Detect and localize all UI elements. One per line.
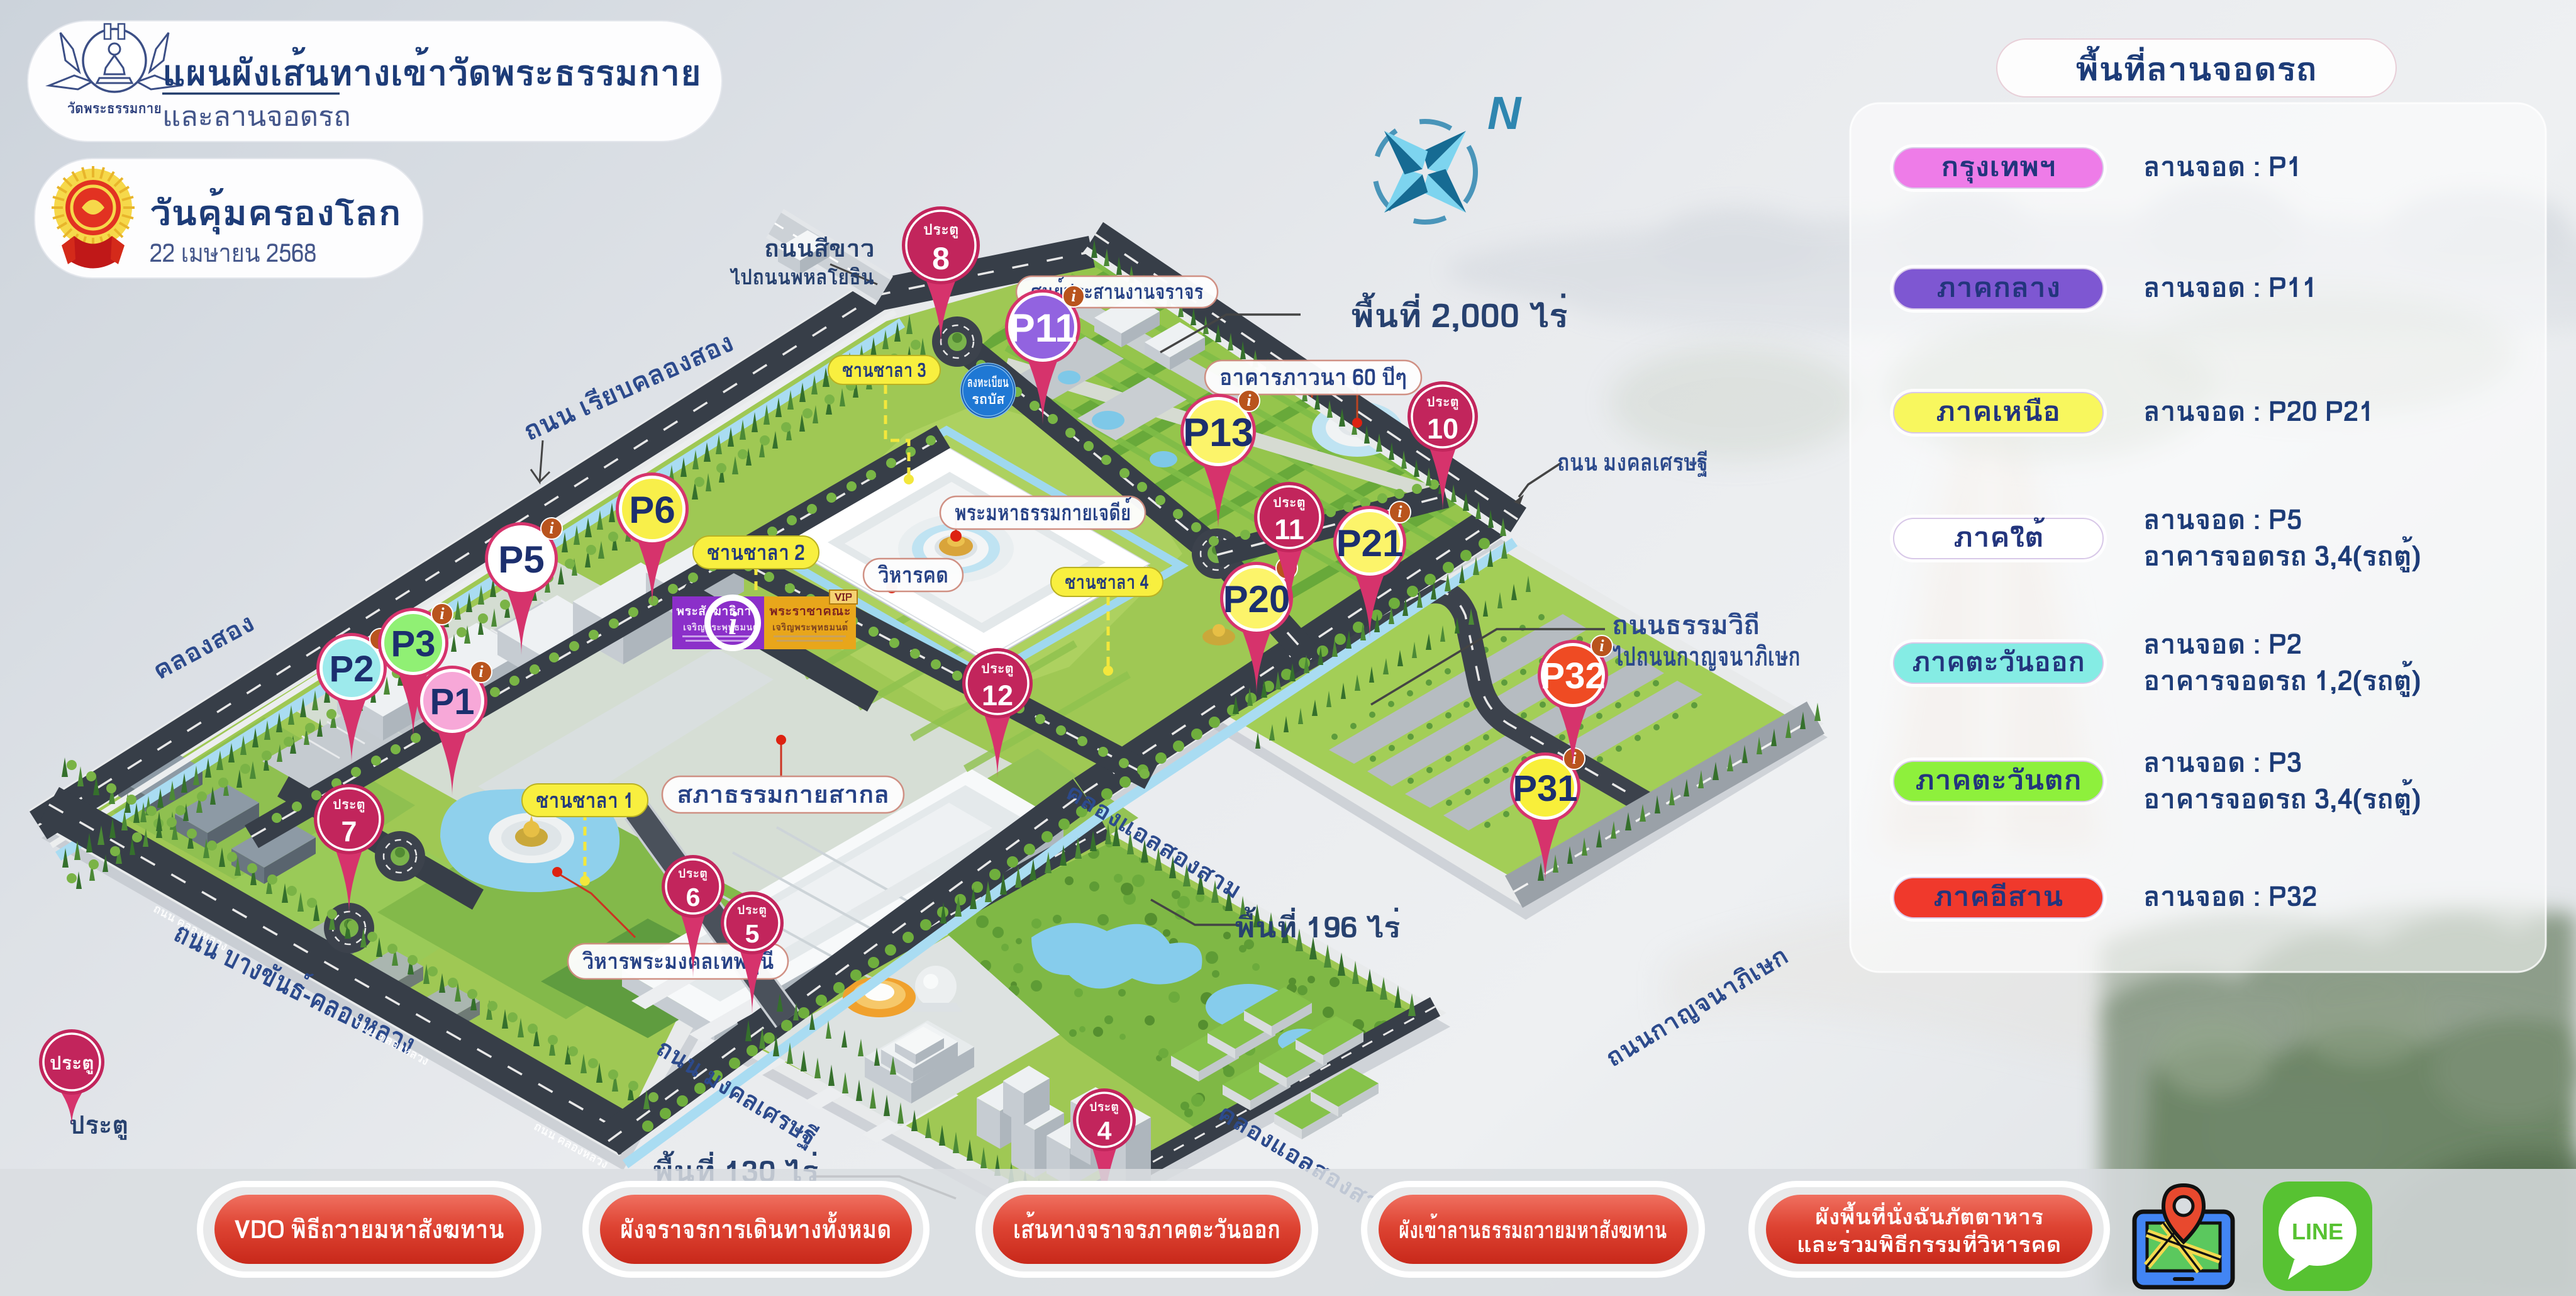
svg-text:8: 8 [932,241,950,276]
svg-text:4: 4 [1097,1116,1112,1145]
svg-text:10: 10 [1427,413,1458,445]
svg-text:i: i [440,605,445,623]
svg-text:6: 6 [686,883,701,912]
svg-text:P21: P21 [1336,522,1404,564]
svg-text:P2: P2 [330,649,374,690]
svg-text:LINE: LINE [2292,1219,2343,1244]
svg-text:P1: P1 [430,681,475,722]
svg-text:P32: P32 [1540,656,1605,696]
svg-text:P5: P5 [498,539,544,581]
svg-text:P11: P11 [1009,306,1077,350]
svg-text:P13: P13 [1183,411,1253,455]
svg-text:12: 12 [982,679,1013,712]
svg-text:i: i [1397,503,1402,521]
svg-text:P31: P31 [1513,768,1577,809]
svg-text:i: i [1599,637,1604,655]
svg-text:P3: P3 [391,623,436,664]
svg-text:7: 7 [341,815,357,847]
svg-text:11: 11 [1274,513,1304,545]
svg-text:i: i [479,662,484,681]
svg-text:P6: P6 [629,489,675,531]
svg-text:P20: P20 [1223,578,1291,620]
svg-text:5: 5 [745,919,760,948]
svg-text:i: i [1246,391,1252,410]
svg-text:i: i [1071,287,1076,305]
svg-text:i: i [549,519,554,537]
